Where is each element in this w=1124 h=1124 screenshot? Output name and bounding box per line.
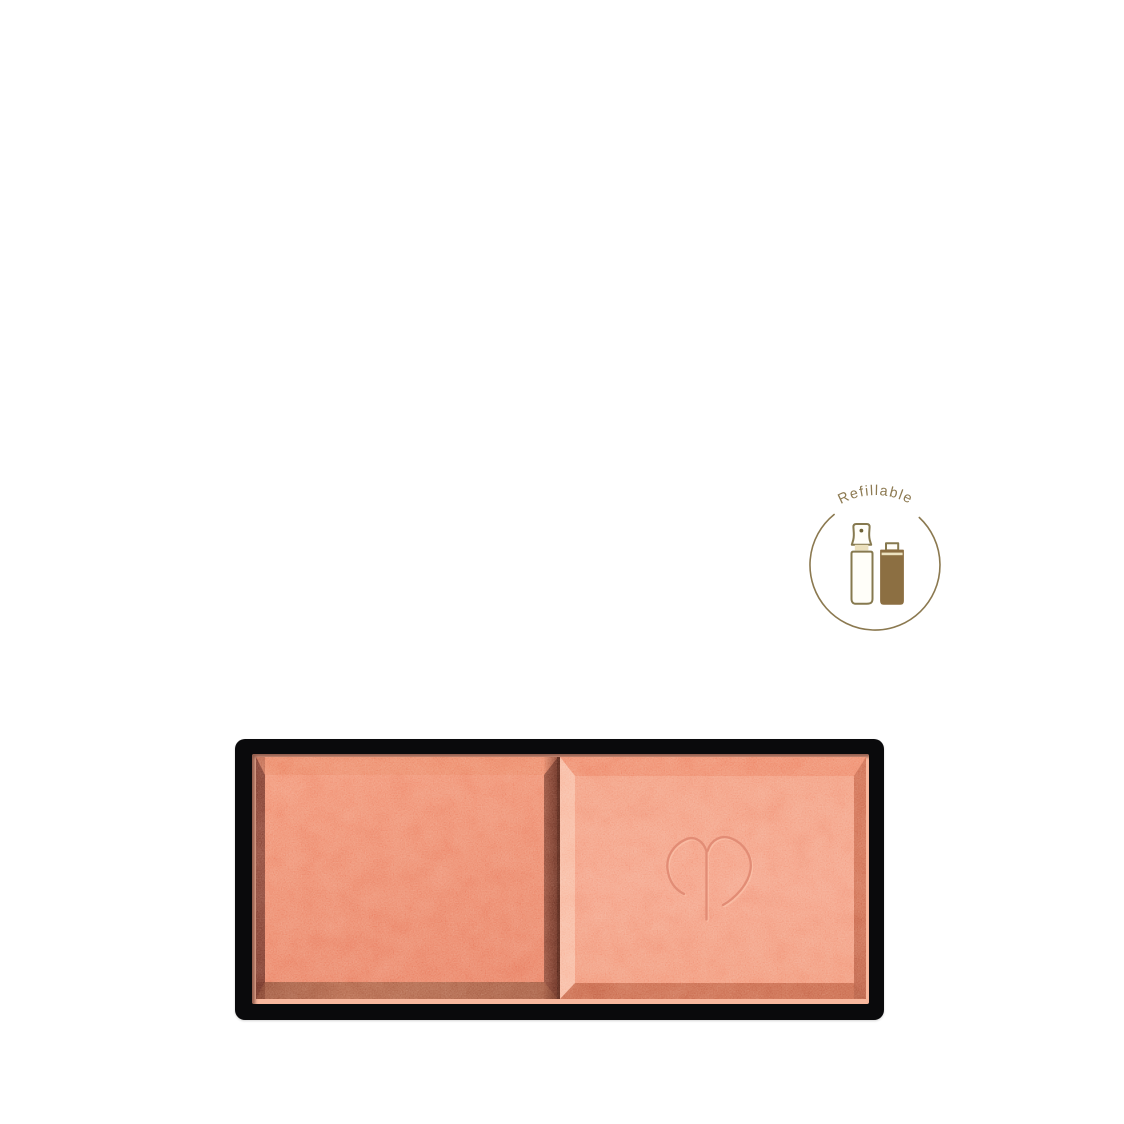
svg-text:Refillable: Refillable (836, 483, 916, 508)
